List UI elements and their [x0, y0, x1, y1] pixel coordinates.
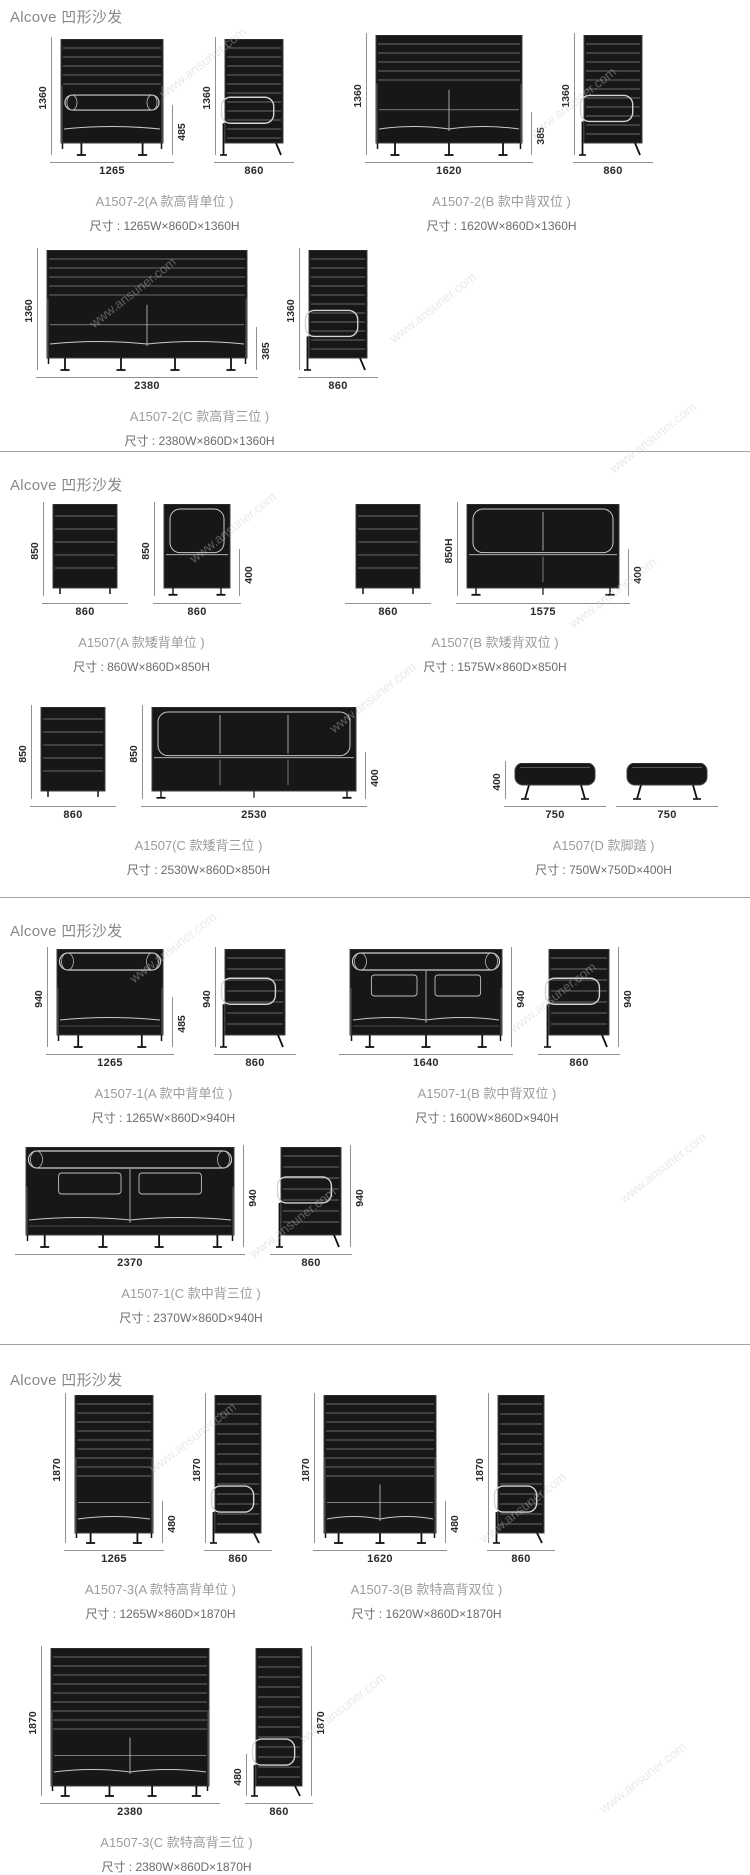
- sofa-drawing-svg: [276, 1147, 346, 1249]
- section-header: Alcove 凹形沙发: [10, 452, 750, 495]
- dimension-label: 1360: [201, 86, 213, 109]
- dimension-right: 940: [349, 1147, 364, 1249]
- dimension-label: 860: [328, 380, 347, 392]
- dimension-label: 485: [176, 1015, 188, 1033]
- dimension-line: [162, 1501, 163, 1543]
- dimension-label: 400: [369, 769, 381, 787]
- sofa-drawing-svg: [52, 949, 168, 1049]
- sofa-front-view: 13603851620: [353, 35, 545, 177]
- sofa-front-view: 13604851265: [38, 39, 186, 177]
- dimension-line: [15, 1254, 245, 1255]
- sofa-drawing: [579, 35, 647, 157]
- dimension-line: [154, 502, 155, 596]
- dimension-line: [36, 377, 258, 378]
- product-views: 187048012651870860: [52, 1395, 269, 1565]
- dimension-line: [204, 1550, 272, 1551]
- sofa-drawing-svg: [319, 1395, 441, 1545]
- dimension-left: 1870: [28, 1648, 43, 1798]
- product-size: 尺寸 : 2380W×860D×1870H: [101, 1858, 251, 1875]
- product-views: 9404851265940860: [34, 949, 293, 1069]
- dimension-line: [487, 1550, 555, 1551]
- dimension-left: 1870: [192, 1395, 207, 1545]
- dimension-line: [47, 947, 48, 1047]
- dimension-bottom: 2530: [147, 806, 361, 821]
- dimension-left: 1870: [475, 1395, 490, 1545]
- dimension-left: 850: [30, 504, 45, 598]
- dimension-line: [574, 33, 575, 155]
- product-group: 136048512651360860A1507-2(A 款高背单位 )尺寸 : …: [38, 39, 291, 234]
- dimension-label: 1870: [300, 1458, 312, 1481]
- sofa-drawing: [159, 504, 235, 598]
- dimension-bottom: 860: [544, 1054, 614, 1069]
- product-views: 136038516201360860: [353, 35, 650, 177]
- product-section-2: Alcove 凹形沙发850860850400860A1507(A 款矮背单位 …: [0, 452, 750, 897]
- dimension-label: 860: [511, 1553, 530, 1565]
- dimension-right: 485: [171, 39, 186, 157]
- product-size: 尺寸 : 2380W×860D×1360H: [124, 432, 274, 449]
- sofa-side-view: 1360860: [286, 250, 375, 392]
- dimension-line: [142, 705, 143, 799]
- dimension-right: 940: [617, 949, 632, 1049]
- dimension-bottom: 860: [351, 603, 425, 618]
- sofa-side-view: 1360860: [561, 35, 650, 177]
- dimension-label: 850: [17, 745, 29, 763]
- dimension-line: [43, 502, 44, 596]
- sofa-drawing-svg: [220, 949, 290, 1049]
- dimension-line: [628, 549, 629, 596]
- product-title: A1507-1(C 款中背三位 ): [121, 1283, 260, 1302]
- sofa-back-view: 860: [348, 504, 428, 618]
- dimension-label: 385: [260, 342, 272, 360]
- product-title: A1507(B 款矮背双位 ): [431, 632, 558, 651]
- product-views: 136048512651360860: [38, 39, 291, 177]
- dimension-label: 1360: [37, 86, 49, 109]
- sofa-front-view: 9404851265: [34, 949, 186, 1069]
- dimension-right: 940: [242, 1147, 257, 1249]
- dimension-label: 2370: [117, 1257, 143, 1269]
- sofa-drawing-svg: [622, 763, 712, 801]
- dimension-left: 480: [233, 1648, 248, 1798]
- dimension-label: 2380: [117, 1806, 143, 1818]
- dimension-left: 850: [129, 707, 144, 801]
- dimension-left: 940: [202, 949, 217, 1049]
- sofa-drawing: [622, 763, 712, 801]
- sofa-drawing: [304, 250, 372, 372]
- dimension-left: 1870: [301, 1395, 316, 1545]
- dimension-label: 850: [128, 745, 140, 763]
- dimension-line: [46, 1054, 174, 1055]
- sofa-drawing-svg: [351, 504, 425, 598]
- dimension-bottom: 1265: [52, 1054, 168, 1069]
- product-group: 9401640940860A1507-1(B 款中背双位 )尺寸 : 1600W…: [342, 949, 632, 1126]
- sofa-drawing: [220, 949, 290, 1049]
- dimension-label: 385: [535, 127, 547, 145]
- product-views: 9401640940860: [342, 949, 632, 1069]
- section-header: Alcove 凹形沙发: [10, 1345, 750, 1390]
- dimension-label: 1265: [97, 1057, 123, 1069]
- product-group: 860850H4001575A1507(B 款矮背双位 )尺寸 : 1575W×…: [348, 504, 642, 675]
- dimension-left: 1360: [24, 250, 39, 372]
- dimension-label: 1360: [352, 84, 364, 107]
- sofa-drawing: [52, 949, 168, 1049]
- sofa-front-view: 18704801620: [301, 1395, 459, 1565]
- dimension-line: [366, 33, 367, 155]
- dimension-line: [298, 377, 378, 378]
- sofa-drawing-svg: [46, 1648, 214, 1798]
- dimension-left: 1360: [38, 39, 53, 157]
- dimension-left: 1360: [202, 39, 217, 157]
- dimension-line: [64, 1550, 164, 1551]
- dimension-line: [488, 1393, 489, 1543]
- dimension-line: [350, 1145, 351, 1247]
- dimension-bottom: 860: [159, 603, 235, 618]
- dimension-label: 940: [247, 1189, 259, 1207]
- dimension-label: 1575: [530, 606, 556, 618]
- dimension-left: 400: [492, 763, 507, 801]
- sofa-drawing-svg: [579, 35, 647, 157]
- product-section-4: Alcove 凹形沙发187048012651870860A1507-3(A 款…: [0, 1345, 750, 1868]
- dimension-line: [214, 162, 294, 163]
- dimension-label: 850: [140, 542, 152, 560]
- product-title: A1507-3(C 款特高背三位 ): [100, 1832, 252, 1851]
- dimension-line: [538, 1054, 620, 1055]
- product-group: 187048012651870860A1507-3(A 款特高背单位 )尺寸 :…: [52, 1395, 269, 1622]
- dimension-bottom: 2380: [46, 1803, 214, 1818]
- catalog-page: Alcove 凹形沙发136048512651360860A1507-2(A 款…: [0, 0, 750, 1868]
- spec-row: 187048012651870860A1507-3(A 款特高背单位 )尺寸 :…: [0, 1395, 750, 1622]
- sofa-drawing-svg: [345, 949, 507, 1049]
- product-title: A1507-2(B 款中背双位 ): [432, 191, 571, 210]
- product-size: 尺寸 : 1265W×860D×940H: [92, 1109, 235, 1126]
- dimension-line: [172, 105, 173, 155]
- sofa-drawing: [220, 39, 288, 157]
- dimension-bottom: 2370: [21, 1254, 239, 1269]
- product-size: 尺寸 : 2370W×860D×940H: [119, 1309, 262, 1326]
- sofa-drawing: [544, 949, 614, 1049]
- dimension-bottom: 860: [276, 1254, 346, 1269]
- spec-row: 136038523801360860A1507-2(C 款高背三位 )尺寸 : …: [0, 250, 750, 449]
- sofa-drawing-svg: [304, 250, 372, 372]
- sofa-drawing-svg: [48, 504, 122, 598]
- dimension-label: 480: [232, 1768, 244, 1786]
- dimension-left: 850H: [444, 504, 459, 598]
- dimension-label: 1265: [101, 1553, 127, 1565]
- dimension-bottom: 750: [510, 806, 600, 821]
- sofa-drawing-svg: [70, 1395, 158, 1545]
- dimension-line: [31, 705, 32, 799]
- dimension-line: [270, 1254, 352, 1255]
- sofa-drawing-svg: [251, 1648, 307, 1798]
- dimension-line: [616, 806, 718, 807]
- dimension-bottom: 1620: [319, 1550, 441, 1565]
- sofa-ottoman-view: 750: [619, 763, 715, 821]
- product-group: 8508608504002530A1507(C 款矮背三位 )尺寸 : 2530…: [18, 707, 379, 878]
- dimension-label: 1870: [474, 1458, 486, 1481]
- sofa-ottoman-view: 400750: [492, 763, 603, 821]
- dimension-label: 940: [201, 990, 213, 1008]
- dimension-right: 400: [627, 504, 642, 598]
- sofa-back-view: 850860: [30, 504, 125, 618]
- product-size: 尺寸 : 1600W×860D×940H: [415, 1109, 558, 1126]
- dimension-left: 1360: [286, 250, 301, 372]
- product-title: A1507-3(B 款特高背双位 ): [351, 1579, 503, 1598]
- product-section-1: Alcove 凹形沙发136048512651360860A1507-2(A 款…: [0, 0, 750, 451]
- dimension-label: 860: [245, 1057, 264, 1069]
- sofa-drawing-svg: [210, 1395, 266, 1545]
- sofa-drawing: [147, 707, 361, 801]
- sofa-drawing: [510, 763, 600, 801]
- dimension-bottom: 1575: [462, 603, 624, 618]
- sofa-side-view: 940860: [273, 1147, 364, 1269]
- dimension-line: [365, 752, 366, 799]
- dimension-line: [153, 603, 241, 604]
- dimension-bottom: 860: [493, 1550, 549, 1565]
- dimension-bottom: 860: [304, 377, 372, 392]
- dimension-label: 860: [301, 1257, 320, 1269]
- dimension-label: 400: [632, 566, 644, 584]
- sofa-front-view: 850H4001575: [444, 504, 642, 618]
- dimension-bottom: 860: [251, 1803, 307, 1818]
- sofa-side-view: 940860: [541, 949, 632, 1069]
- dimension-label: 860: [569, 1057, 588, 1069]
- dimension-label: 860: [269, 1806, 288, 1818]
- sofa-front-view: 9401640: [342, 949, 525, 1069]
- product-group: 850860850400860A1507(A 款矮背单位 )尺寸 : 860W×…: [30, 504, 253, 675]
- dimension-line: [256, 327, 257, 370]
- dimension-label: 860: [244, 165, 263, 177]
- dimension-line: [314, 1393, 315, 1543]
- sofa-drawing: [46, 1648, 214, 1798]
- sofa-back-view: 850860: [18, 707, 113, 821]
- dimension-right: 385: [530, 35, 545, 157]
- dimension-line: [445, 1501, 446, 1543]
- dimension-label: 940: [354, 1189, 366, 1207]
- dimension-label: 860: [228, 1553, 247, 1565]
- product-group: 187023804801870860A1507-3(C 款特高背三位 )尺寸 :…: [28, 1648, 325, 1875]
- dimension-label: 1870: [315, 1711, 327, 1734]
- dimension-right: 400: [238, 504, 253, 598]
- product-size: 尺寸 : 1265W×860D×1870H: [85, 1605, 235, 1622]
- dimension-line: [313, 1550, 447, 1551]
- product-group: 9402370940860A1507-1(C 款中背三位 )尺寸 : 2370W…: [18, 1147, 364, 1326]
- product-group: 136038523801360860A1507-2(C 款高背三位 )尺寸 : …: [24, 250, 375, 449]
- dimension-label: 400: [243, 566, 255, 584]
- dimension-label: 1360: [285, 299, 297, 322]
- dimension-right: 400: [364, 707, 379, 801]
- dimension-label: 860: [75, 606, 94, 618]
- dimension-left: 1870: [52, 1395, 67, 1545]
- sofa-drawing-svg: [510, 763, 600, 801]
- sofa-drawing: [48, 504, 122, 598]
- product-section-3: Alcove 凹形沙发9404851265940860A1507-1(A 款中背…: [0, 898, 750, 1344]
- product-size: 尺寸 : 1575W×860D×850H: [423, 658, 566, 675]
- sofa-front-view: 9402370: [18, 1147, 257, 1269]
- sofa-drawing-svg: [36, 707, 110, 801]
- sofa-drawing-svg: [42, 250, 252, 372]
- dimension-left: 1360: [561, 35, 576, 157]
- sofa-drawing: [36, 707, 110, 801]
- product-size: 尺寸 : 1620W×860D×1360H: [426, 217, 576, 234]
- dimension-line: [40, 1803, 220, 1804]
- dimension-label: 860: [603, 165, 622, 177]
- dimension-label: 940: [622, 990, 634, 1008]
- dimension-right: 480: [161, 1395, 176, 1545]
- product-group: 9404851265940860A1507-1(A 款中背单位 )尺寸 : 12…: [34, 949, 293, 1126]
- dimension-right: 385: [255, 250, 270, 372]
- dimension-label: 1360: [560, 84, 572, 107]
- dimension-label: 400: [491, 773, 503, 791]
- dimension-bottom: 860: [220, 1054, 290, 1069]
- dimension-line: [504, 806, 606, 807]
- product-size: 尺寸 : 750W×750D×400H: [535, 861, 672, 878]
- dimension-line: [215, 947, 216, 1047]
- dimension-label: 850H: [443, 538, 455, 563]
- dimension-label: 485: [176, 123, 188, 141]
- dimension-right: 1870: [310, 1648, 325, 1798]
- sofa-side-view: 1870860: [475, 1395, 552, 1565]
- dimension-bottom: 1265: [56, 162, 168, 177]
- dimension-line: [245, 1803, 313, 1804]
- dimension-label: 860: [63, 809, 82, 821]
- dimension-bottom: 860: [220, 162, 288, 177]
- sofa-drawing: [251, 1648, 307, 1798]
- sofa-drawing: [351, 504, 425, 598]
- dimension-line: [311, 1646, 312, 1796]
- dimension-line: [246, 1754, 247, 1796]
- sofa-front-view: 850400860: [141, 504, 253, 618]
- sofa-drawing: [21, 1147, 239, 1249]
- sofa-drawing: [319, 1395, 441, 1545]
- sofa-front-view: 18702380: [28, 1648, 217, 1818]
- dimension-label: 1360: [23, 299, 35, 322]
- dimension-line: [505, 761, 506, 799]
- dimension-line: [345, 603, 431, 604]
- dimension-label: 1620: [436, 165, 462, 177]
- dimension-line: [215, 37, 216, 155]
- section-header: Alcove 凹形沙发: [10, 0, 750, 27]
- product-group: 400750750A1507(D 款脚踏 )尺寸 : 750W×750D×400…: [492, 763, 715, 878]
- product-title: A1507-3(A 款特高背单位 ): [85, 1579, 236, 1598]
- product-title: A1507-2(C 款高背三位 ): [130, 406, 269, 425]
- dimension-label: 860: [378, 606, 397, 618]
- dimension-right: 940: [510, 949, 525, 1049]
- product-views: 9402370940860: [18, 1147, 364, 1269]
- sofa-drawing-svg: [544, 949, 614, 1049]
- dimension-bottom: 1265: [70, 1550, 158, 1565]
- product-views: 860850H4001575: [348, 504, 642, 618]
- product-group: 136038516201360860A1507-2(B 款中背双位 )尺寸 : …: [353, 35, 650, 234]
- dimension-label: 750: [657, 809, 676, 821]
- sofa-front-view: 18704801265: [52, 1395, 176, 1565]
- dimension-bottom: 1620: [371, 162, 527, 177]
- dimension-label: 2530: [241, 809, 267, 821]
- dimension-label: 1265: [99, 165, 125, 177]
- dimension-line: [239, 549, 240, 596]
- dimension-line: [339, 1054, 513, 1055]
- product-views: 187048016201870860: [301, 1395, 552, 1565]
- sofa-side-view: 1870860: [192, 1395, 269, 1565]
- dimension-line: [456, 603, 630, 604]
- dimension-label: 480: [449, 1515, 461, 1533]
- dimension-line: [37, 248, 38, 370]
- dimension-left: 850: [18, 707, 33, 801]
- spec-row: 9404851265940860A1507-1(A 款中背单位 )尺寸 : 12…: [0, 949, 750, 1126]
- dimension-line: [618, 947, 619, 1047]
- dimension-line: [531, 112, 532, 155]
- sofa-drawing: [42, 250, 252, 372]
- sofa-drawing-svg: [21, 1147, 239, 1249]
- dimension-line: [41, 1646, 42, 1796]
- product-views: 850860850400860: [30, 504, 253, 618]
- spec-row: 9402370940860A1507-1(C 款中背三位 )尺寸 : 2370W…: [0, 1147, 750, 1326]
- sofa-drawing: [56, 39, 168, 157]
- dimension-line: [299, 248, 300, 370]
- sofa-drawing-svg: [371, 35, 527, 157]
- product-group: 187048016201870860A1507-3(B 款特高背双位 )尺寸 :…: [301, 1395, 552, 1622]
- product-views: 400750750: [492, 763, 715, 821]
- dimension-line: [214, 1054, 296, 1055]
- sofa-side-view: 940860: [202, 949, 293, 1069]
- dimension-line: [30, 806, 116, 807]
- dimension-line: [457, 502, 458, 596]
- sofa-drawing-svg: [493, 1395, 549, 1545]
- product-title: A1507-1(A 款中背单位 ): [95, 1083, 233, 1102]
- product-size: 尺寸 : 1620W×860D×1870H: [351, 1605, 501, 1622]
- dimension-label: 2380: [134, 380, 160, 392]
- dimension-right: 485: [171, 949, 186, 1049]
- product-title: A1507-2(A 款高背单位 ): [96, 191, 234, 210]
- spec-row: 187023804801870860A1507-3(C 款特高背三位 )尺寸 :…: [0, 1648, 750, 1875]
- spec-row: 850860850400860A1507(A 款矮背单位 )尺寸 : 860W×…: [0, 504, 750, 675]
- dimension-label: 940: [515, 990, 527, 1008]
- product-title: A1507-1(B 款中背双位 ): [418, 1083, 557, 1102]
- sofa-drawing: [210, 1395, 266, 1545]
- dimension-line: [573, 162, 653, 163]
- dimension-line: [172, 997, 173, 1047]
- product-title: A1507(D 款脚踏 ): [553, 835, 655, 854]
- sofa-drawing: [276, 1147, 346, 1249]
- dimension-line: [365, 162, 533, 163]
- dimension-left: 850: [141, 504, 156, 598]
- spec-row: 136048512651360860A1507-2(A 款高背单位 )尺寸 : …: [0, 35, 750, 234]
- sofa-drawing: [462, 504, 624, 598]
- sofa-drawing: [493, 1395, 549, 1545]
- sofa-drawing-svg: [220, 39, 288, 157]
- dimension-line: [511, 947, 512, 1047]
- sofa-drawing: [371, 35, 527, 157]
- dimension-bottom: 2380: [42, 377, 252, 392]
- spec-row: 8508608504002530A1507(C 款矮背三位 )尺寸 : 2530…: [0, 707, 750, 878]
- sofa-drawing-svg: [462, 504, 624, 598]
- dimension-label: 1870: [191, 1458, 203, 1481]
- dimension-line: [205, 1393, 206, 1543]
- dimension-line: [51, 37, 52, 155]
- dimension-label: 1870: [27, 1711, 39, 1734]
- dimension-line: [42, 603, 128, 604]
- dimension-label: 1640: [413, 1057, 439, 1069]
- sofa-drawing-svg: [147, 707, 361, 801]
- dimension-label: 750: [545, 809, 564, 821]
- section-header: Alcove 凹形沙发: [10, 898, 750, 941]
- sofa-drawing-svg: [56, 39, 168, 157]
- sofa-side-view: 4801870860: [233, 1648, 325, 1818]
- dimension-bottom: 860: [579, 162, 647, 177]
- dimension-label: 1870: [51, 1458, 63, 1481]
- product-size: 尺寸 : 1265W×860D×1360H: [89, 217, 239, 234]
- sofa-drawing: [70, 1395, 158, 1545]
- product-views: 136038523801360860: [24, 250, 375, 392]
- dimension-label: 1620: [367, 1553, 393, 1565]
